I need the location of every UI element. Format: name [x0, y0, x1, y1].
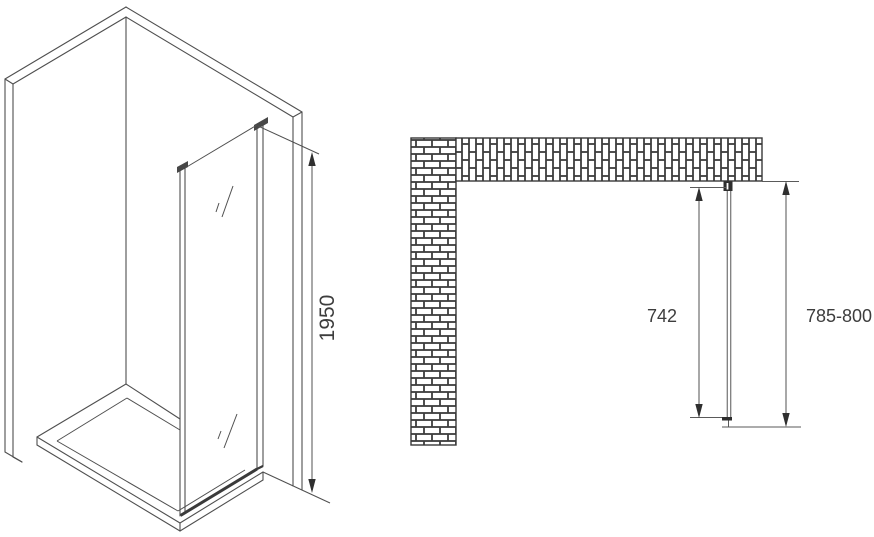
bottom-seal — [181, 469, 258, 516]
arrow-up-icon — [695, 187, 702, 201]
arrow-up-icon — [782, 181, 789, 195]
overall-width-dimension: 785-800 — [722, 181, 872, 427]
glass-width-dimension: 742 — [647, 187, 726, 418]
extension-line-top — [258, 126, 319, 154]
plan-view: 742 785-800 — [411, 138, 872, 445]
brick-wall-side — [411, 138, 456, 445]
right-wall — [126, 7, 302, 490]
glass-panel — [177, 117, 268, 516]
arrow-down-icon — [308, 479, 315, 493]
glass-reflection-marks — [216, 186, 237, 448]
extension-line-bottom — [263, 472, 330, 503]
overall-width-label: 785-800 — [806, 306, 872, 326]
drawing-canvas: 1950 742 — [0, 0, 874, 537]
left-wall — [5, 7, 126, 462]
arrow-down-icon — [695, 404, 702, 418]
isometric-view: 1950 — [5, 7, 339, 531]
technical-drawing-page: { "drawing": { "kind": "shower-side-pane… — [0, 0, 874, 537]
height-dimension: 1950 — [258, 126, 339, 503]
brick-wall-back — [456, 138, 762, 181]
shower-tray — [37, 384, 263, 531]
glass-width-label: 742 — [647, 306, 677, 326]
arrow-up-icon — [308, 152, 315, 166]
floor-bracket — [722, 417, 732, 421]
height-dimension-label: 1950 — [316, 295, 339, 342]
frame-top-cap-right — [254, 117, 268, 131]
arrow-down-icon — [782, 413, 789, 427]
glass-panel-plan — [722, 182, 733, 428]
